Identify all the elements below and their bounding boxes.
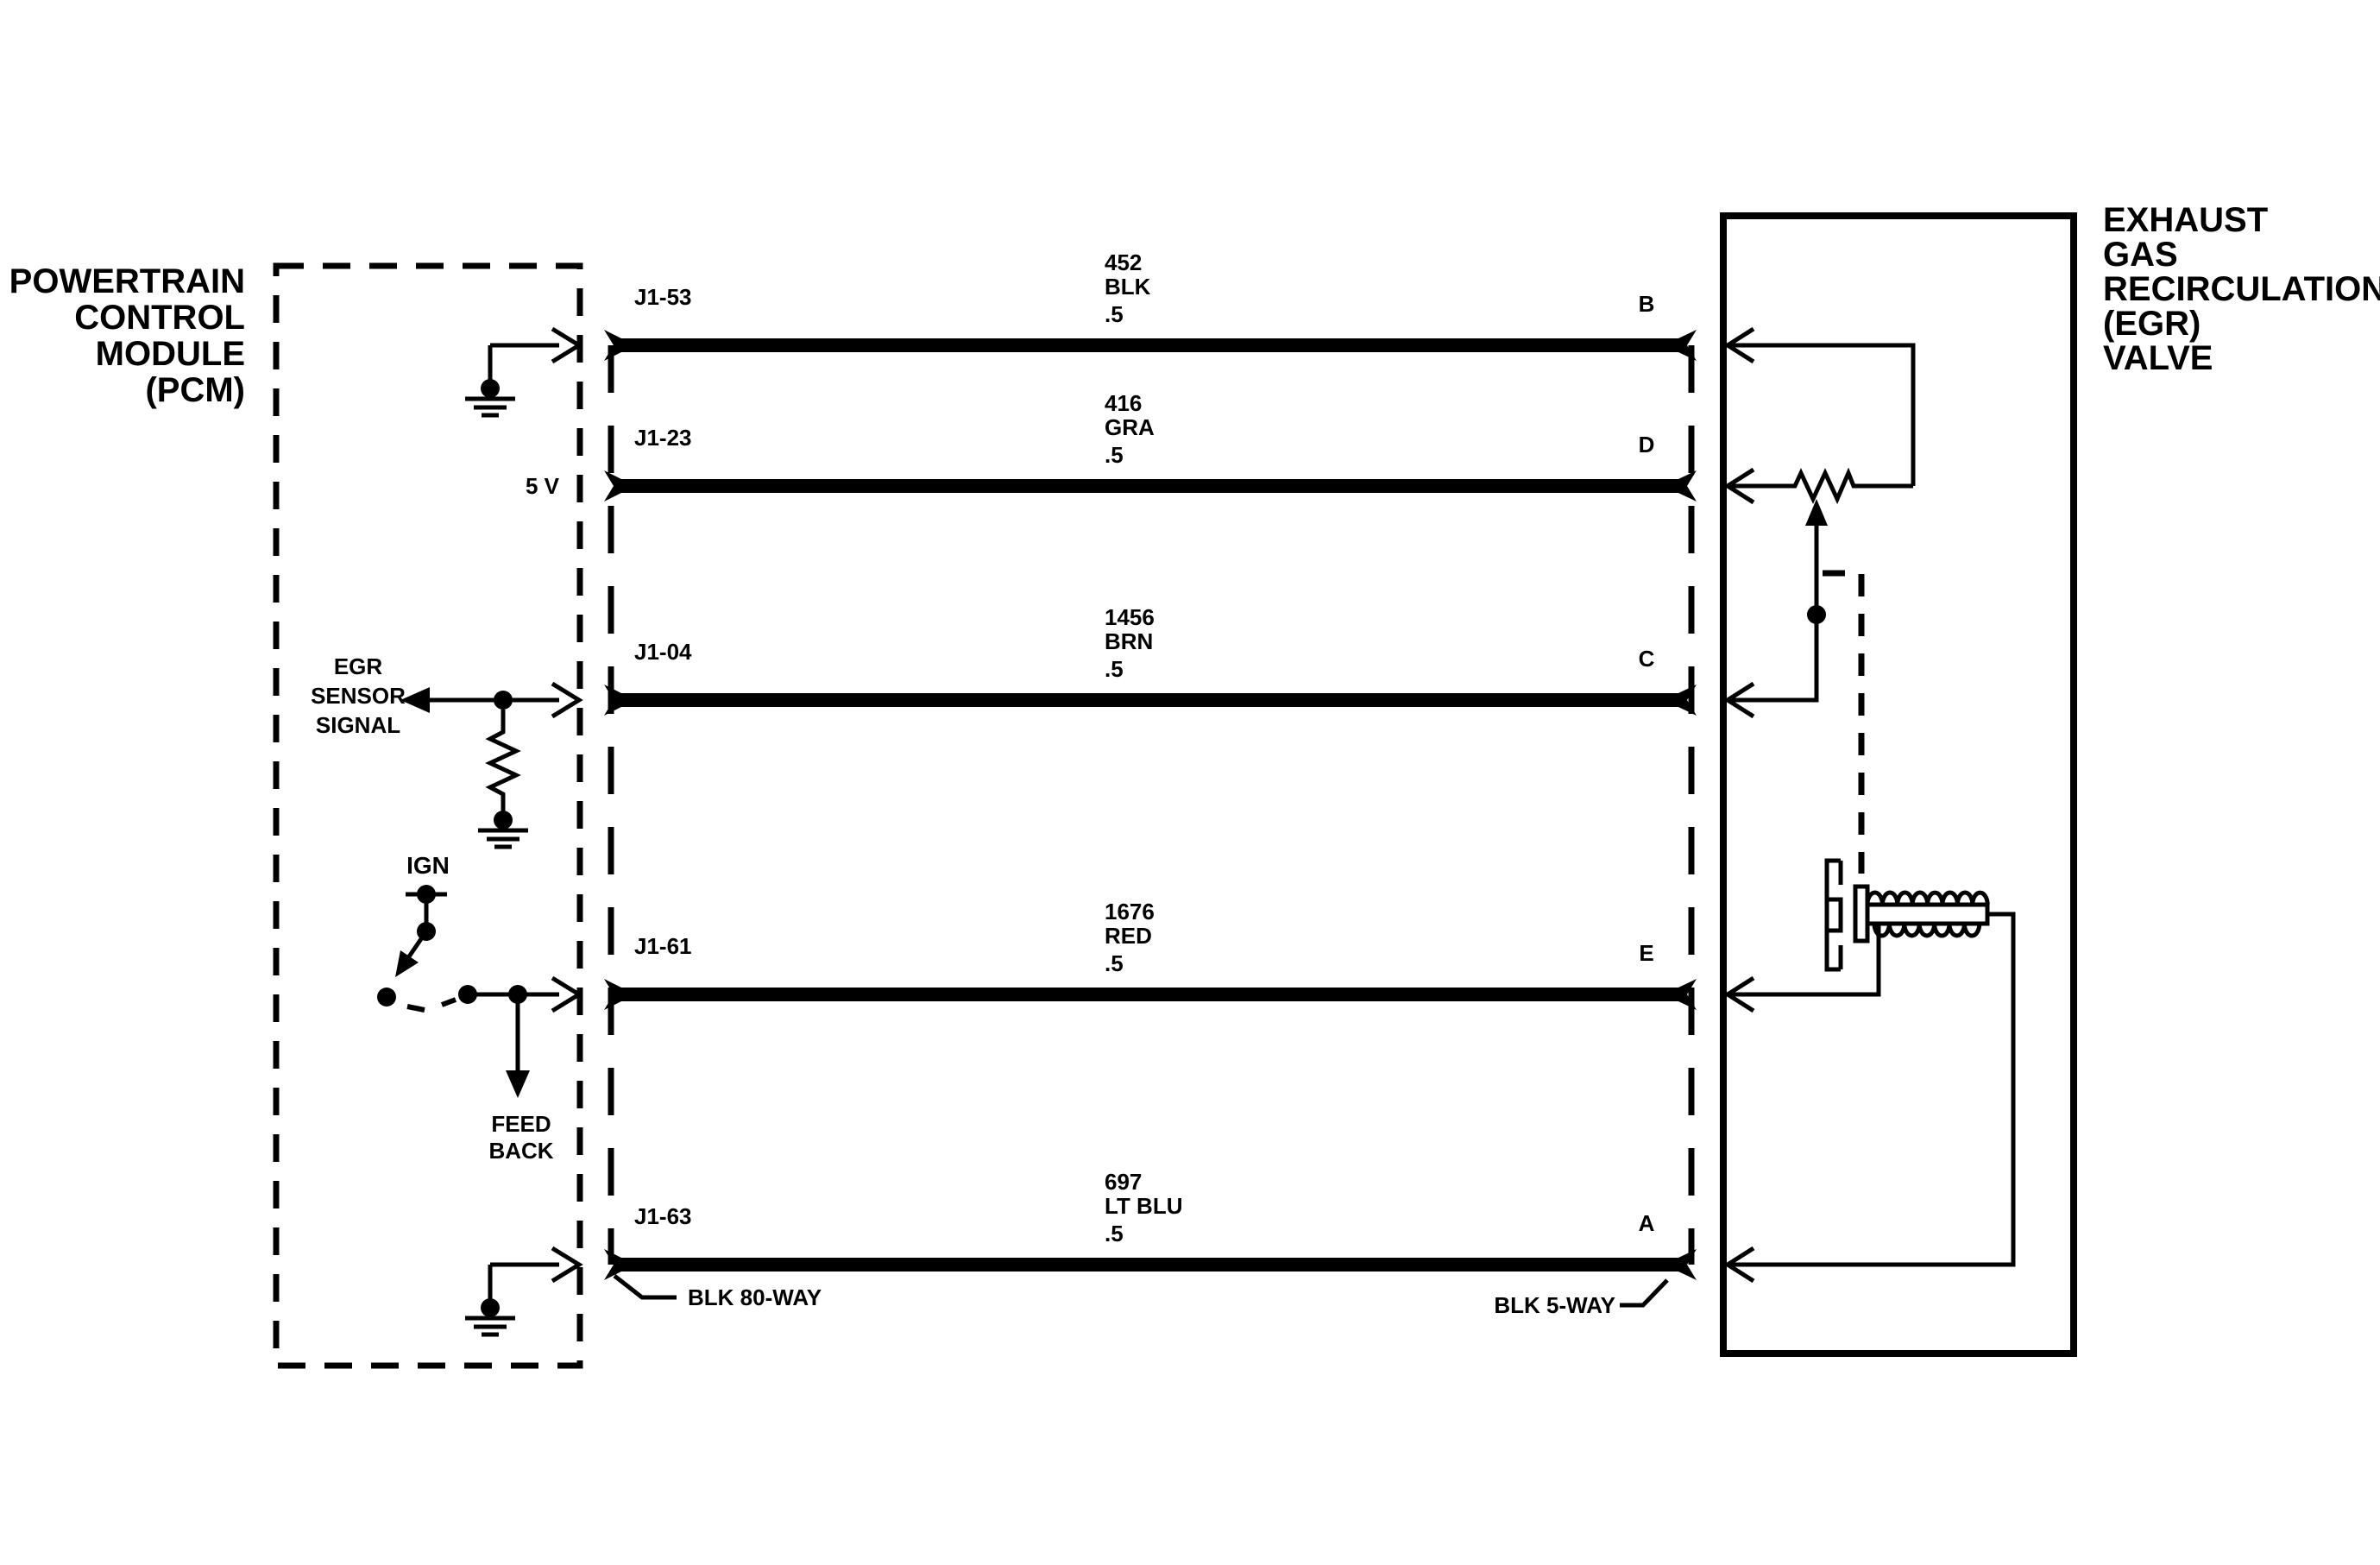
- wire-gauge-label: .5: [1105, 1221, 1124, 1246]
- wire-color-label: GRA: [1105, 414, 1155, 440]
- pcm-pin-label: J1-53: [634, 284, 692, 310]
- wire-color-label: BRN: [1105, 628, 1153, 654]
- ground-lead: [490, 345, 559, 382]
- wire-row-416-gra: J1-23 416 GRA .5 D: [604, 390, 1754, 502]
- pcm-connector-callout: BLK 80-WAY: [614, 1276, 822, 1310]
- pcm-ground-bottom: [465, 1265, 559, 1335]
- wire-gauge-label: .5: [1105, 442, 1124, 468]
- resistor-icon: [490, 710, 516, 811]
- coil-return-lead: [1728, 914, 2013, 1265]
- egr-valve-box: [1723, 216, 2074, 1354]
- wiper-lead: [1728, 524, 1816, 700]
- wire-bar: [621, 1258, 1678, 1272]
- pcm-pin-label: J1-23: [634, 425, 692, 451]
- egr-title-line: VALVE: [2103, 339, 2213, 377]
- wire-gauge-label: .5: [1105, 950, 1124, 976]
- connector-leader: [1620, 1280, 1667, 1305]
- wire-bar: [621, 479, 1678, 493]
- circuit-number-label: 1456: [1105, 604, 1155, 630]
- pcm-title-line: POWERTRAIN: [9, 262, 245, 300]
- pcm-pin-label: J1-63: [634, 1203, 692, 1229]
- egr-title-line: EXHAUST: [2103, 201, 2268, 239]
- circuit-number-label: 697: [1105, 1169, 1142, 1195]
- switch-arrow-icon: [395, 950, 419, 977]
- egr-connector-label: BLK 5-WAY: [1494, 1292, 1615, 1318]
- pcm-pin-label: J1-04: [634, 639, 692, 665]
- circuit-number-label: 416: [1105, 390, 1142, 416]
- wire-gauge-label: .5: [1105, 301, 1124, 327]
- diagram-canvas: POWERTRAIN CONTROL MODULE (PCM) EXHAUST …: [0, 0, 2380, 1565]
- wire-color-label: BLK: [1105, 274, 1151, 300]
- wire-row-1676-red: J1-61 1676 RED .5 E: [552, 899, 1754, 1011]
- mechanical-link-dashed: [1823, 573, 1861, 874]
- egr-valve-title: EXHAUST GAS RECIRCULATION (EGR) VALVE: [2103, 201, 2380, 377]
- feedback-arrow-icon: [506, 1070, 530, 1098]
- pcm-title-line: MODULE: [96, 335, 245, 373]
- wiper-arrow-icon: [1805, 499, 1828, 526]
- pcm-connector-label: BLK 80-WAY: [688, 1284, 822, 1310]
- wire-bar: [621, 988, 1678, 1001]
- egr-sensor-signal-label: SIGNAL: [316, 712, 400, 738]
- junction-dot: [481, 1298, 500, 1317]
- junction-dot: [1807, 605, 1826, 624]
- connector-leader: [614, 1276, 677, 1297]
- junction-dot: [481, 379, 500, 398]
- switch-pivot-dot: [377, 988, 396, 1007]
- egr-pin-label: C: [1639, 646, 1655, 672]
- wire-row-1456-brn: J1-04 1456 BRN .5 C: [552, 604, 1754, 716]
- wire-right-terminal-icon: [1678, 470, 1697, 502]
- feedback-label: BACK: [488, 1138, 553, 1164]
- wire-bar: [621, 338, 1678, 352]
- egr-pin-label: E: [1639, 940, 1653, 966]
- egr-title-line: RECIRCULATION: [2103, 270, 2380, 308]
- pcm-title-line: CONTROL: [74, 299, 245, 337]
- pcm-ground-top: [465, 345, 559, 415]
- pcm-pin-label: J1-61: [634, 933, 692, 959]
- ign-label: IGN: [406, 852, 450, 879]
- egr-valve-internals: [1728, 345, 2013, 1265]
- pcm-title: POWERTRAIN CONTROL MODULE (PCM): [9, 262, 245, 409]
- ignition-switch-branch: IGN FEED BACK: [377, 852, 559, 1164]
- pintle-seat-icon: [1827, 861, 1841, 969]
- wire-color-label: LT BLU: [1105, 1193, 1183, 1219]
- wire-bar: [621, 693, 1678, 707]
- solenoid-core: [1867, 905, 1987, 924]
- egr-sensor-signal-label: EGR: [334, 653, 383, 679]
- egr-wiring-diagram: POWERTRAIN CONTROL MODULE (PCM) EXHAUST …: [0, 0, 2380, 1565]
- junction-dot: [494, 811, 513, 830]
- pot-feed-lead: [1728, 345, 1913, 486]
- egr-sensor-signal-branch: EGR SENSOR SIGNAL: [311, 653, 559, 847]
- egr-pin-label: B: [1639, 291, 1655, 317]
- egr-sensor-signal-label: SENSOR: [311, 683, 406, 709]
- five-volt-label: 5 V: [526, 473, 560, 499]
- ground-icon: [478, 830, 528, 847]
- egr-connector-callout: BLK 5-WAY: [1494, 1280, 1667, 1318]
- circuit-number-label: 452: [1105, 249, 1142, 275]
- egr-title-line: (EGR): [2103, 305, 2201, 343]
- egr-title-line: GAS: [2103, 236, 2178, 274]
- pcm-title-line: (PCM): [145, 371, 245, 409]
- wire-left-terminal-icon: [604, 470, 621, 502]
- switch-travel-dashes: [407, 1000, 456, 1010]
- wire-color-label: RED: [1105, 923, 1152, 949]
- wire-gauge-label: .5: [1105, 656, 1124, 682]
- junction-dot: [494, 691, 513, 710]
- egr-pin-label: D: [1639, 432, 1655, 458]
- potentiometer-resistor-icon: [1728, 473, 1913, 499]
- pcm-module-box: [276, 266, 580, 1366]
- wire-row-452-blk: J1-53 452 BLK .5 B: [552, 249, 1754, 362]
- feedback-label: FEED: [491, 1111, 551, 1137]
- wire-row-697-ltblu: J1-63 697 LT BLU .5 A: [552, 1169, 1754, 1281]
- circuit-number-label: 1676: [1105, 899, 1155, 924]
- egr-pin-label: A: [1639, 1210, 1655, 1236]
- ground-lead: [490, 1265, 559, 1301]
- ground-icon: [465, 1318, 515, 1335]
- ground-icon: [465, 399, 515, 415]
